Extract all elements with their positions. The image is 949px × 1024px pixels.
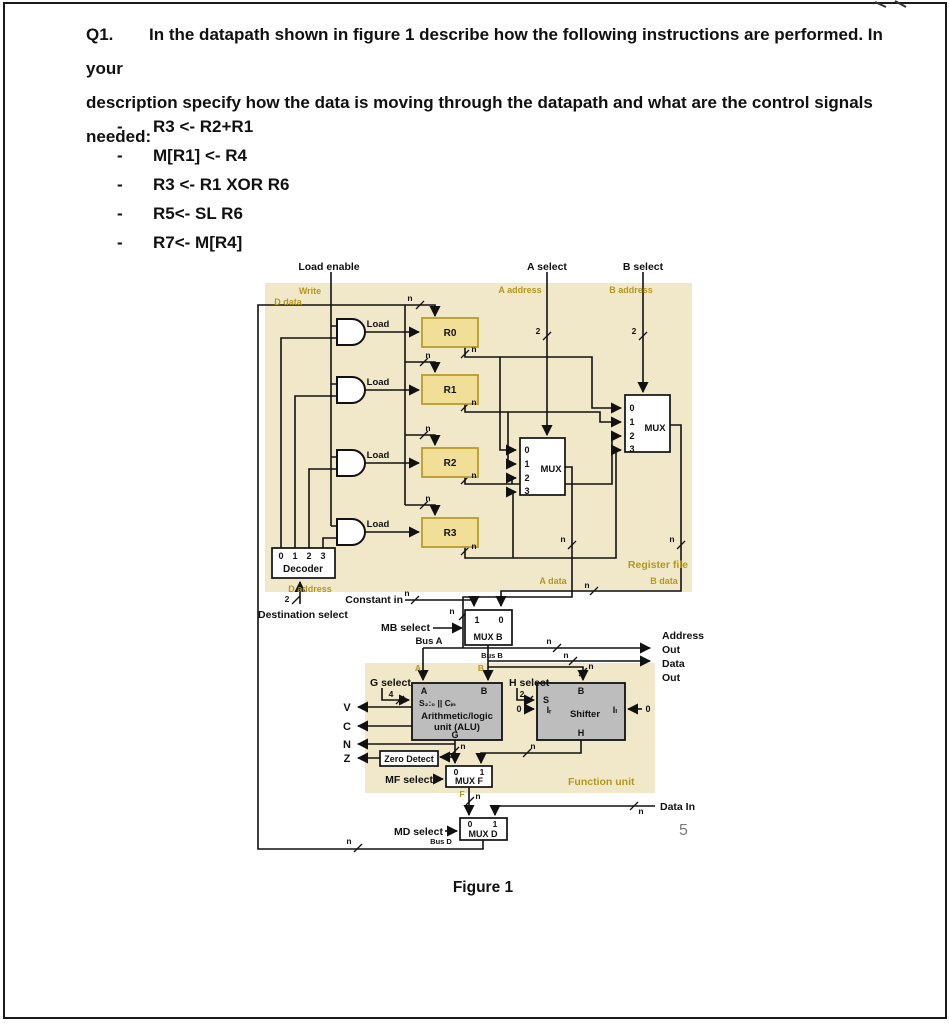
svg-text:n: n bbox=[669, 534, 674, 544]
load-label: Load bbox=[367, 519, 390, 530]
h-select-label: H select bbox=[509, 677, 550, 689]
svg-text:0: 0 bbox=[516, 704, 521, 714]
load-label: Load bbox=[367, 450, 390, 461]
decoder-label: Decoder bbox=[283, 564, 323, 575]
alu-select-label: S₂:₀ || Cᵢₙ bbox=[419, 698, 456, 708]
figure-caption: Figure 1 bbox=[383, 879, 583, 897]
svg-text:Out: Out bbox=[662, 672, 681, 684]
svg-text:n: n bbox=[471, 541, 476, 551]
svg-text:Out: Out bbox=[662, 644, 681, 656]
d-data-label: D data bbox=[274, 297, 303, 307]
svg-text:n: n bbox=[584, 580, 589, 590]
svg-text:2: 2 bbox=[520, 689, 525, 699]
z-flag-label: Z bbox=[344, 753, 351, 765]
destination-select-label: Destination select bbox=[258, 609, 348, 621]
shifter-label: Shifter bbox=[570, 709, 600, 720]
svg-text:1: 1 bbox=[474, 615, 479, 625]
a-data-label: A data bbox=[539, 576, 567, 586]
mb-select-label: MB select bbox=[381, 622, 431, 634]
mux-f-label: MUX F bbox=[455, 776, 484, 786]
mux-a-label: MUX bbox=[540, 464, 562, 475]
corner-mark bbox=[875, 1, 906, 7]
svg-text:3: 3 bbox=[629, 444, 634, 454]
datapath-diagram: Load enable A select B select Write D da… bbox=[0, 0, 949, 1024]
svg-text:n: n bbox=[425, 423, 430, 433]
svg-text:3: 3 bbox=[524, 486, 529, 496]
and-gate-r3 bbox=[337, 519, 365, 545]
svg-text:n: n bbox=[560, 534, 565, 544]
d-address-label: D address bbox=[288, 584, 332, 594]
write-label: Write bbox=[299, 286, 321, 296]
zero-detect-label: Zero Detect bbox=[384, 754, 434, 764]
constant-in-label: Constant in bbox=[345, 594, 403, 606]
svg-text:A: A bbox=[421, 686, 428, 696]
c-flag-label: C bbox=[343, 721, 351, 733]
v-flag-label: V bbox=[343, 702, 351, 714]
page-number: 5 bbox=[679, 822, 688, 840]
register-file-label: Register file bbox=[628, 559, 688, 571]
alu-label: Arithmetic/logic bbox=[421, 711, 493, 722]
svg-text:F: F bbox=[459, 789, 464, 799]
svg-text:n: n bbox=[471, 344, 476, 354]
b-address-label: B address bbox=[609, 285, 653, 295]
svg-text:0: 0 bbox=[629, 403, 634, 413]
svg-text:n: n bbox=[346, 836, 351, 846]
svg-text:2: 2 bbox=[306, 551, 311, 561]
data-out-label: Data bbox=[662, 658, 685, 670]
svg-text:0: 0 bbox=[524, 445, 529, 455]
bus-d-label: Bus D bbox=[430, 837, 452, 846]
and-gate-r1 bbox=[337, 377, 365, 403]
svg-text:0: 0 bbox=[468, 819, 473, 829]
svg-text:n: n bbox=[425, 493, 430, 503]
svg-text:1: 1 bbox=[629, 417, 634, 427]
svg-text:1: 1 bbox=[524, 459, 529, 469]
svg-text:2: 2 bbox=[536, 326, 541, 336]
r2-label: R2 bbox=[444, 458, 457, 469]
svg-text:n: n bbox=[475, 791, 480, 801]
svg-text:n: n bbox=[588, 661, 593, 671]
bus-a-label: Bus A bbox=[415, 636, 442, 647]
mux-b-top-label: MUX bbox=[644, 423, 666, 434]
svg-text:Iₗ: Iₗ bbox=[613, 705, 618, 715]
and-gate-r0 bbox=[337, 319, 365, 345]
svg-text:Iᵣ: Iᵣ bbox=[547, 705, 553, 715]
data-in-label: Data In bbox=[660, 801, 695, 813]
svg-text:2: 2 bbox=[632, 326, 637, 336]
bus-b-label: Bus B bbox=[481, 651, 503, 660]
r1-label: R1 bbox=[444, 385, 457, 396]
svg-text:B: B bbox=[478, 663, 484, 673]
svg-text:1: 1 bbox=[292, 551, 297, 561]
svg-text:n: n bbox=[425, 350, 430, 360]
data-in-wire bbox=[495, 806, 655, 815]
svg-text:0: 0 bbox=[645, 704, 650, 714]
svg-text:n: n bbox=[546, 636, 551, 646]
b-data-label: B data bbox=[650, 576, 679, 586]
svg-text:1: 1 bbox=[493, 819, 498, 829]
svg-text:n: n bbox=[471, 397, 476, 407]
svg-text:2: 2 bbox=[629, 431, 634, 441]
mux-b-label: MUX B bbox=[474, 632, 504, 642]
mf-select-label: MF select bbox=[385, 774, 433, 786]
svg-text:G: G bbox=[451, 730, 458, 740]
svg-text:n: n bbox=[563, 650, 568, 660]
svg-text:2: 2 bbox=[524, 473, 529, 483]
svg-text:B: B bbox=[481, 686, 488, 696]
a-select-label: A select bbox=[527, 261, 567, 273]
load-enable-label: Load enable bbox=[298, 261, 359, 273]
document-page: Q1.In the datapath shown in figure 1 des… bbox=[0, 0, 949, 1024]
mux-d-label: MUX D bbox=[469, 829, 499, 839]
r3-label: R3 bbox=[444, 528, 457, 539]
svg-text:A: A bbox=[415, 663, 421, 673]
b-select-label: B select bbox=[623, 261, 664, 273]
svg-text:0: 0 bbox=[498, 615, 503, 625]
n-flag-label: N bbox=[343, 739, 351, 751]
g-select-label: G select bbox=[370, 677, 411, 689]
svg-text:0: 0 bbox=[278, 551, 283, 561]
svg-text:H: H bbox=[578, 728, 585, 738]
svg-text:n: n bbox=[407, 293, 412, 303]
address-out-label: Address bbox=[662, 630, 704, 642]
a-address-label: A address bbox=[498, 285, 541, 295]
svg-text:n: n bbox=[638, 806, 643, 816]
svg-text:3: 3 bbox=[320, 551, 325, 561]
svg-text:B: B bbox=[578, 686, 585, 696]
svg-text:n: n bbox=[460, 741, 465, 751]
svg-text:n: n bbox=[449, 606, 454, 616]
svg-text:2: 2 bbox=[285, 594, 290, 604]
load-label: Load bbox=[367, 377, 390, 388]
svg-text:S: S bbox=[543, 695, 549, 705]
function-unit-label: Function unit bbox=[568, 776, 635, 788]
svg-text:n: n bbox=[530, 741, 535, 751]
and-gate-r2 bbox=[337, 450, 365, 476]
r0-label: R0 bbox=[444, 328, 457, 339]
svg-text:n: n bbox=[404, 588, 409, 598]
svg-text:n: n bbox=[471, 470, 476, 480]
svg-text:4: 4 bbox=[389, 689, 394, 699]
load-label: Load bbox=[367, 319, 390, 330]
